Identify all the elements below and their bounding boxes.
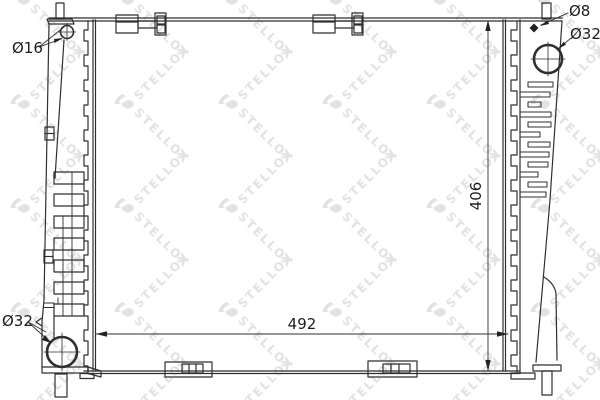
- radiator-technical-drawing: S STELLOX S STELLOX: [0, 0, 600, 400]
- dim-width-label: 492: [288, 315, 317, 333]
- watermark-layer: [0, 0, 600, 400]
- label-dia16: Ø16: [12, 39, 43, 57]
- radiator-drawing-svg: S STELLOX S STELLOX: [0, 0, 600, 400]
- label-dia32-right: Ø32: [570, 25, 600, 43]
- label-dia8: Ø8: [569, 2, 590, 20]
- dim-height-label: 406: [467, 182, 485, 211]
- label-dia32-bottom-left: Ø32: [2, 312, 33, 330]
